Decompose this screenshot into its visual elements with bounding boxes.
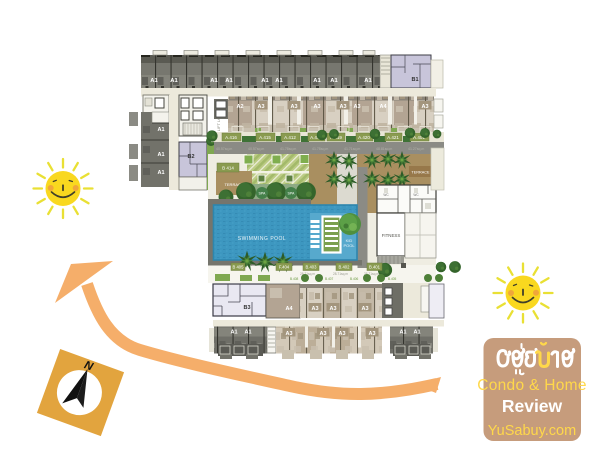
svg-text:A1: A1 [399,330,406,336]
svg-text:A3: A3 [421,104,428,110]
svg-text:A.415: A.415 [259,135,271,140]
svg-text:41.78sq.m: 41.78sq.m [280,147,296,151]
svg-text:B.406: B.406 [350,277,359,281]
svg-text:SPA: SPA [288,192,296,196]
svg-text:A3: A3 [290,104,297,110]
svg-text:WC: WC [413,193,419,197]
svg-text:A3: A3 [319,331,326,337]
svg-text:A1: A1 [225,78,233,84]
svg-text:B3: B3 [243,305,250,311]
svg-text:Condo & Home: Condo & Home [477,377,587,394]
svg-text:SWIMMING POOL: SWIMMING POOL [238,236,286,242]
svg-text:B.408: B.408 [290,277,299,281]
svg-text:A.421: A.421 [387,135,399,140]
svg-text:40.57sq.m: 40.57sq.m [248,147,264,151]
svg-text:A.412: A.412 [284,135,296,140]
svg-text:A1: A1 [230,330,237,336]
svg-text:A1: A1 [413,330,420,336]
svg-text:B1: B1 [411,77,418,83]
svg-text:A4: A4 [379,104,387,110]
svg-text:B.405: B.405 [388,277,397,281]
svg-text:Review: Review [502,396,563,416]
svg-text:A1: A1 [157,152,164,158]
svg-text:A1: A1 [210,78,218,84]
svg-text:41.78sq.m: 41.78sq.m [312,147,328,151]
svg-text:POOL: POOL [343,243,355,248]
svg-text:A3: A3 [338,331,345,337]
svg-text:A1: A1 [261,78,269,84]
svg-text:41.27sq.m: 41.27sq.m [408,147,424,151]
svg-text:28.71sq.m: 28.71sq.m [333,272,348,276]
svg-text:A3: A3 [313,104,320,110]
svg-text:WC: WC [383,193,389,197]
svg-text:SPA: SPA [259,192,267,196]
svg-text:A4: A4 [285,306,293,312]
svg-text:A3: A3 [257,104,264,110]
svg-text:B.403: B.403 [306,265,318,270]
svg-text:A3: A3 [329,306,336,312]
svg-text:48.81sq.m: 48.81sq.m [376,147,392,151]
svg-text:B 405: B 405 [233,265,245,270]
svg-text:A1: A1 [150,78,158,84]
svg-text:B2: B2 [187,154,194,160]
svg-text:A.420: A.420 [358,135,370,140]
svg-text:B.407: B.407 [325,277,334,281]
svg-text:A3: A3 [339,104,346,110]
svg-text:A1: A1 [364,78,372,84]
svg-text:A3: A3 [368,331,375,337]
svg-text:A1: A1 [244,330,251,336]
svg-text:A1: A1 [313,78,321,84]
svg-text:A2: A2 [236,104,243,110]
svg-text:A1: A1 [157,170,164,176]
svg-text:A1: A1 [170,78,178,84]
svg-text:A.416: A.416 [225,135,237,140]
svg-text:B.401: B.401 [369,265,381,270]
svg-text:41.71sq.m: 41.71sq.m [344,147,360,151]
svg-text:B 414: B 414 [222,166,234,171]
svg-text:40.57sq.m: 40.57sq.m [216,147,232,151]
svg-text:FITNESS: FITNESS [382,233,401,238]
svg-text:A1: A1 [330,78,338,84]
svg-text:A3: A3 [285,331,292,337]
svg-text:TERRACE: TERRACE [411,171,430,175]
svg-text:B.402: B.402 [339,265,351,270]
svg-text:A1: A1 [157,127,164,133]
svg-text:YuSabuy.com: YuSabuy.com [488,423,576,439]
svg-text:A1: A1 [275,78,283,84]
svg-text:F.404: F.404 [279,265,290,270]
svg-text:A3: A3 [353,104,360,110]
svg-text:A3: A3 [361,306,368,312]
svg-text:A3: A3 [311,306,318,312]
